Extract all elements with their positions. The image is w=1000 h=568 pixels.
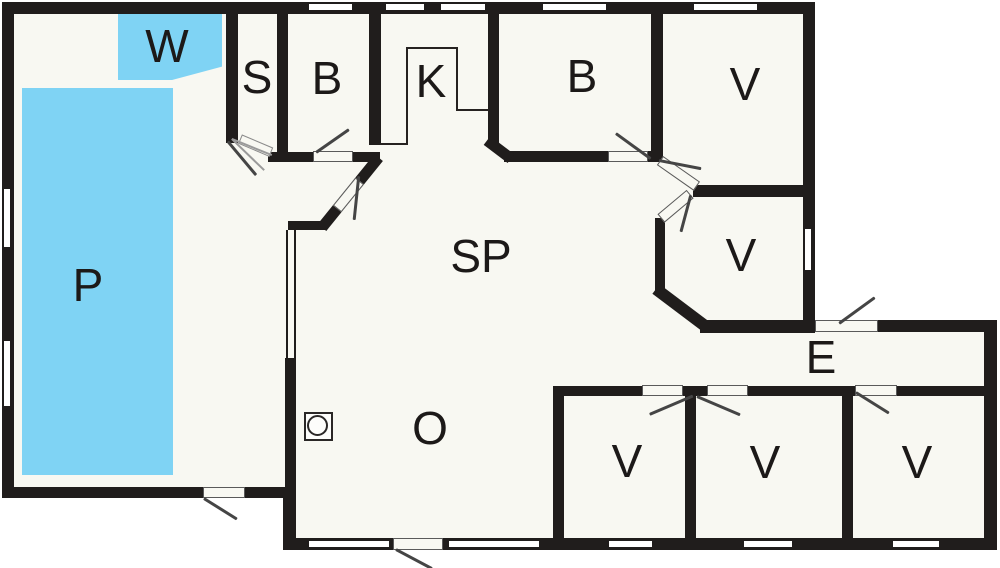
- wall-v2-left: [655, 218, 665, 293]
- room-label-v4: V: [750, 439, 781, 485]
- wall-v2-bottom: [700, 320, 815, 333]
- window: [385, 3, 425, 11]
- window: [3, 188, 11, 248]
- wall-b2-bottom: [504, 151, 608, 162]
- wall-b2-v1: [651, 2, 663, 161]
- window: [440, 3, 486, 11]
- kitchen-counter-line: [456, 47, 458, 111]
- wall-v4-v5: [842, 386, 853, 550]
- wall-k-b2: [488, 2, 499, 143]
- window: [804, 228, 812, 271]
- wall-row-top-1: [553, 386, 642, 396]
- kitchen-counter-line: [406, 47, 408, 145]
- window: [308, 540, 390, 548]
- window: [448, 540, 540, 548]
- room-label-v2: V: [726, 232, 757, 278]
- floor-east-wing: [815, 320, 985, 550]
- room-label-p: P: [73, 262, 104, 308]
- room-label-w: W: [145, 23, 188, 69]
- floor-plan: W P S B K B V V SP E O V V V: [0, 0, 1000, 568]
- wall-v3-v4: [685, 386, 696, 550]
- door-opening-v3[interactable]: [642, 385, 683, 396]
- door-opening-b1[interactable]: [313, 151, 353, 162]
- wall-right-east: [984, 330, 997, 550]
- kitchen-counter-line: [456, 109, 489, 111]
- wall-right-main: [803, 2, 815, 327]
- door-opening-v4[interactable]: [707, 385, 748, 396]
- wall-entry-top: [878, 320, 997, 332]
- stove-circle: [307, 415, 328, 436]
- wall-v3-left: [553, 386, 564, 550]
- wall-sp-pool-lower: [285, 358, 296, 498]
- kitchen-counter-line: [406, 47, 458, 49]
- window: [308, 3, 353, 11]
- wall-v1-v2: [693, 185, 815, 197]
- door-swing-terrace: [395, 548, 432, 568]
- window: [608, 540, 653, 548]
- kitchen-counter-line: [380, 143, 408, 145]
- glass-wall-pool-sp: [286, 230, 296, 358]
- door-opening-terrace[interactable]: [393, 538, 443, 550]
- wall-row-top-3: [748, 386, 855, 396]
- wall-b1-k: [369, 2, 381, 145]
- wall-s-left: [226, 13, 238, 143]
- door-swing-pool-exterior: [203, 497, 237, 520]
- wall-b1-bottom: [268, 152, 313, 162]
- room-label-s: S: [242, 54, 273, 100]
- room-label-o: O: [412, 405, 448, 451]
- window: [743, 540, 793, 548]
- window: [892, 540, 940, 548]
- room-label-b1: B: [312, 55, 343, 101]
- window: [542, 3, 607, 11]
- wall-pool-bottom: [2, 487, 290, 498]
- room-label-b2: B: [567, 53, 598, 99]
- room-label-sp: SP: [450, 233, 511, 279]
- wall-row-top-4: [897, 386, 984, 396]
- room-label-v5: V: [902, 439, 933, 485]
- room-label-e: E: [806, 334, 837, 380]
- room-label-k: K: [416, 58, 447, 104]
- window: [693, 3, 758, 11]
- wall-s-b1: [277, 13, 288, 153]
- wall-left: [2, 2, 14, 498]
- window: [3, 340, 11, 407]
- door-opening-pool-exterior[interactable]: [203, 487, 245, 498]
- stove-icon: [304, 412, 333, 441]
- room-label-v3: V: [612, 438, 643, 484]
- room-label-v1: V: [730, 61, 761, 107]
